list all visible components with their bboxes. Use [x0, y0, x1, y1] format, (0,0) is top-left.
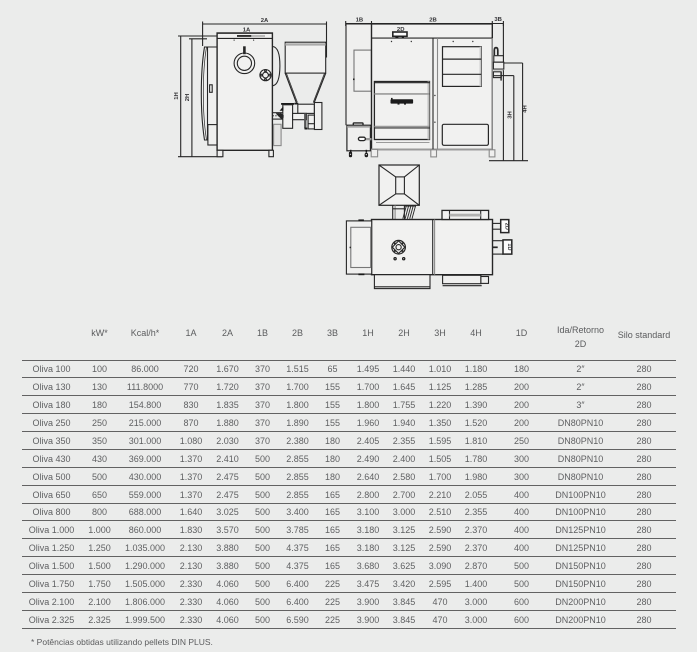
svg-text:2D: 2D	[503, 223, 509, 230]
svg-text:4H: 4H	[523, 105, 529, 113]
svg-text:1H: 1H	[174, 92, 180, 100]
svg-text:1B: 1B	[356, 18, 364, 24]
svg-text:2A: 2A	[261, 18, 269, 24]
svg-text:2B: 2B	[429, 18, 437, 24]
svg-text:2D: 2D	[397, 27, 405, 33]
svg-text:1D: 1D	[506, 243, 512, 250]
svg-text:3B: 3B	[494, 17, 502, 23]
svg-text:1A: 1A	[243, 27, 251, 33]
svg-text:2H: 2H	[185, 94, 191, 102]
svg-text:3H: 3H	[508, 111, 514, 119]
